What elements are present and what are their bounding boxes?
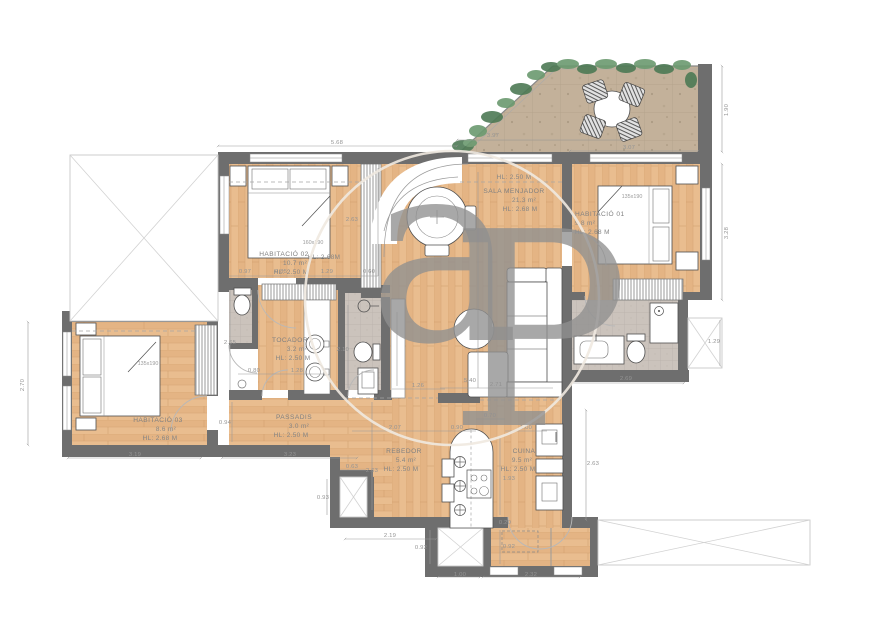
dimension-label: 0.63 (346, 464, 359, 470)
dimension-label: 3.19 (129, 452, 141, 458)
room-label: TOCADOR (272, 337, 308, 344)
nightstand (676, 252, 698, 270)
toilet-tank (234, 288, 251, 295)
dimension-label: 1.29 (321, 269, 333, 275)
patio-top-left (70, 155, 218, 321)
dimension-label: 1.29 (708, 339, 720, 345)
tocador-fixtures (304, 300, 330, 394)
pillow (83, 377, 101, 413)
dimension-label: 2.32 (525, 572, 537, 578)
room-area: 5.4 m² (396, 457, 416, 464)
dimension-label: 2.10 (337, 347, 350, 353)
floor-plan-page: 5.68 3.97 3.07 1.90 3.28 2.63 0.97 0.85 … (0, 0, 885, 628)
room-label: PASSADIS (276, 414, 312, 421)
bedroom-03-furniture (76, 323, 160, 430)
hallway-floor (229, 398, 392, 445)
toilet (627, 341, 645, 363)
nightstand (332, 166, 348, 186)
bedroom-03-closet (195, 325, 217, 395)
dimension-label: 3.23 (284, 452, 297, 458)
nightstand (230, 166, 246, 186)
dimension-label: 1.00 (454, 572, 467, 578)
bed-size-label: 135x190 (138, 361, 159, 367)
room-area: 8.6 m² (156, 426, 176, 433)
dimension-label: 2.70 (20, 378, 26, 391)
room-label: HABITACIÓ 03 (133, 415, 183, 424)
dimension-label: 0.80 (248, 368, 261, 374)
dimension-label: 0.93 (317, 495, 330, 501)
room-height: HL: 2.50 M (274, 432, 309, 439)
dimension-label: 0.97 (239, 269, 251, 275)
nightstand (676, 166, 698, 184)
dimension-label: 0.94 (219, 420, 232, 426)
elevator-shaft (340, 477, 367, 517)
dimension-label: 5.68 (331, 140, 344, 146)
gallery-floor (483, 528, 590, 566)
watermark-letter-p: P (448, 174, 630, 489)
bed-size-label: 160x190 (303, 240, 324, 246)
room-label: REBEDOR (386, 448, 422, 455)
nightstand (76, 323, 96, 335)
shaft-bottom (438, 528, 483, 566)
pillow (252, 169, 288, 189)
pillow (653, 227, 669, 261)
dimension-label: 0.92 (415, 545, 427, 551)
dimension-label: 2.63 (346, 217, 359, 223)
dimension-label: 0.92 (503, 544, 515, 550)
bedroom-02-furniture (230, 166, 348, 258)
dimension-label: 1.90 (724, 103, 730, 116)
floor-plan-drawing: 5.68 3.97 3.07 1.90 3.28 2.63 0.97 0.85 … (0, 0, 885, 628)
room-label: HABITACIÓ 02 (259, 249, 309, 258)
toilet-tank (627, 334, 645, 341)
room-area: 3.2 m² (287, 346, 307, 353)
drain (238, 380, 246, 388)
room-height: HL: 2.50 M (274, 269, 309, 276)
dimension-label: 1.28 (291, 368, 304, 374)
nightstand (76, 418, 96, 430)
dimension-label: 2.19 (384, 533, 396, 539)
room-area: 10.7 m² (283, 260, 307, 267)
shower (650, 303, 678, 343)
room-area: 3.0 m² (289, 423, 309, 430)
patio-bottom-right (598, 520, 810, 565)
room-height: HL: 2.50 M (276, 355, 311, 362)
tocador-radiator (262, 284, 336, 300)
room-height: HL: 2.50 M (384, 466, 419, 473)
dimension-label: 2.07 (389, 425, 401, 431)
dimension-label: 3.28 (724, 226, 730, 239)
pillow (83, 339, 101, 375)
dimension-label: 2.65 (224, 340, 237, 346)
dimension-label: 3.07 (623, 145, 635, 151)
dimension-label: 2.63 (366, 468, 379, 474)
room-height: HL: 2.68 M (143, 435, 178, 442)
toilet (234, 295, 250, 315)
pillow (653, 189, 669, 223)
dimension-label: 0.20 (499, 520, 512, 526)
pillow (290, 169, 326, 189)
